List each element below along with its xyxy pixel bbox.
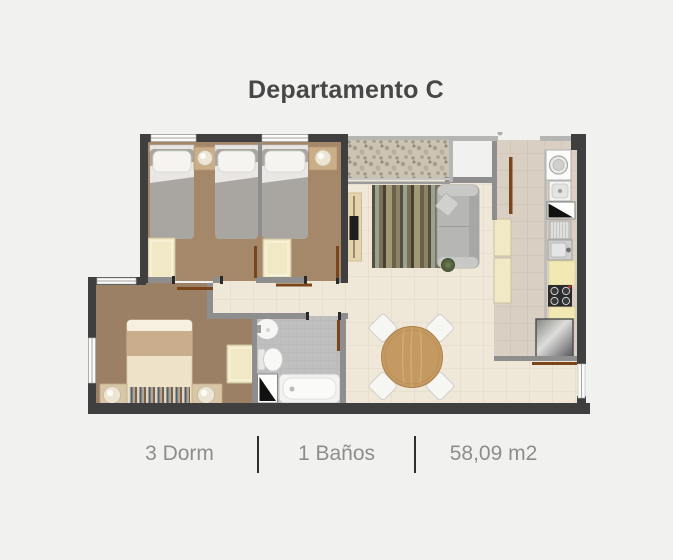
dining-table bbox=[382, 327, 443, 388]
floorplan bbox=[86, 132, 592, 416]
door-bedroom-2 bbox=[336, 246, 339, 278]
page-title: Departamento C bbox=[19, 76, 673, 105]
floorplan-page: Departamento C bbox=[0, 0, 673, 560]
bathroom-sink bbox=[256, 319, 279, 340]
tv-console bbox=[347, 193, 362, 261]
window bbox=[97, 278, 136, 284]
refrigerator bbox=[536, 319, 573, 357]
single-bed-2 bbox=[215, 145, 258, 239]
double-bed bbox=[127, 320, 192, 408]
wardrobe-bedroom-1 bbox=[148, 238, 175, 281]
kitchen-counter bbox=[549, 261, 575, 285]
door-hallway bbox=[276, 284, 312, 287]
divider bbox=[257, 436, 259, 473]
door-kitchen bbox=[532, 362, 577, 365]
balcony-floor bbox=[346, 140, 450, 179]
dish-rack bbox=[549, 221, 571, 239]
window bbox=[578, 364, 585, 398]
toilet bbox=[258, 348, 283, 371]
floorplan-image bbox=[86, 132, 592, 416]
laundry-sink bbox=[549, 181, 571, 201]
divider bbox=[414, 436, 416, 473]
wardrobe-bedroom-3 bbox=[227, 345, 255, 383]
stat-bedrooms: 3 Dorm bbox=[104, 442, 255, 466]
stat-area: 58,09 m2 bbox=[418, 442, 569, 466]
pantry-cabinet bbox=[494, 219, 511, 256]
single-bed-1 bbox=[150, 145, 194, 239]
door-bedroom-3 bbox=[177, 287, 213, 290]
entry-door-knob bbox=[498, 132, 503, 136]
kitchen-sink bbox=[548, 240, 572, 260]
window bbox=[151, 135, 196, 142]
single-bed-3 bbox=[262, 145, 308, 239]
sofa bbox=[435, 185, 479, 268]
stove bbox=[548, 285, 572, 307]
shaft-marker-kitchen bbox=[547, 202, 575, 219]
door-entry bbox=[509, 157, 513, 214]
window bbox=[262, 135, 308, 142]
stats-bar: 3 Dorm 1 Baños 58,09 m2 bbox=[0, 432, 673, 476]
kitchen-counter bbox=[549, 307, 575, 319]
door-bathroom bbox=[337, 320, 340, 351]
tv bbox=[350, 216, 359, 240]
door-bedroom-1 bbox=[254, 246, 257, 278]
washing-machine bbox=[546, 150, 571, 180]
wardrobe-bedroom-2 bbox=[263, 239, 291, 278]
stat-bathrooms: 1 Baños bbox=[261, 442, 412, 466]
nightstand-lamp-2 bbox=[309, 147, 337, 170]
nightstand-lamp-1 bbox=[194, 147, 216, 170]
bathtub bbox=[279, 374, 340, 403]
plant bbox=[442, 259, 455, 272]
pantry-cabinet bbox=[494, 258, 511, 303]
window bbox=[89, 338, 96, 383]
shaft-marker-bath bbox=[258, 374, 278, 403]
